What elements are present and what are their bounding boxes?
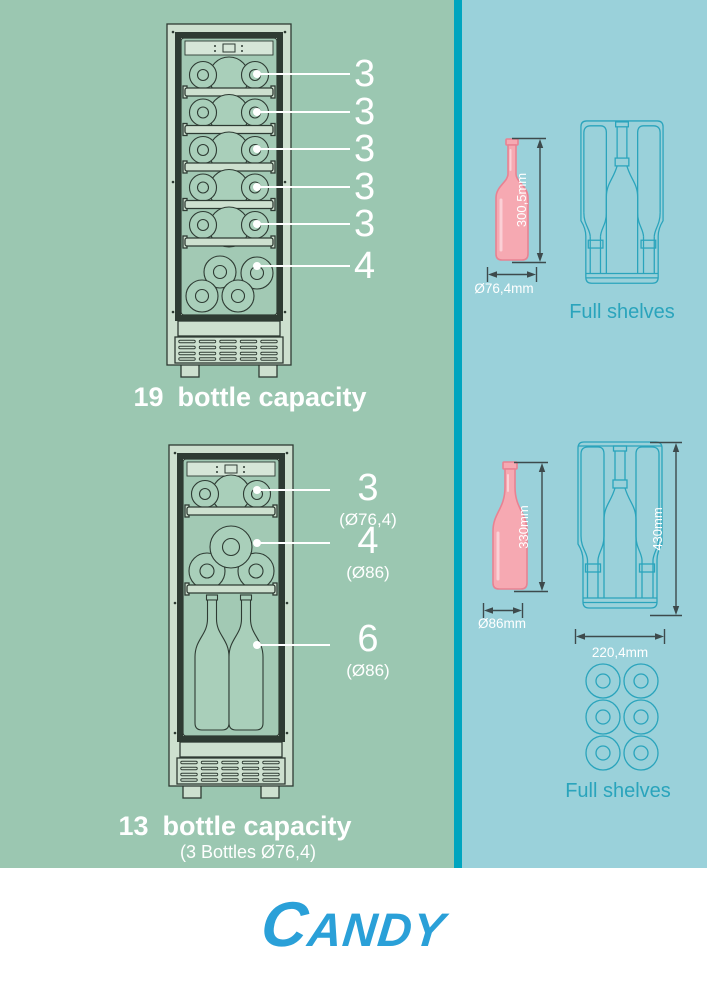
leader-dot <box>253 183 261 191</box>
shelf-row <box>183 207 275 248</box>
leader-line <box>256 644 330 646</box>
leader-dot <box>253 70 261 78</box>
leader-dot <box>253 108 261 116</box>
bottle-diameter-label: Ø86mm <box>450 616 554 631</box>
capacity-number: 13 <box>118 811 148 841</box>
shelf-row <box>183 170 275 211</box>
leader-line <box>256 111 350 113</box>
capacity-number: 19 <box>133 382 163 412</box>
shelf-row <box>183 57 275 98</box>
base-band <box>180 742 282 757</box>
capacity-caption-19: 19bottle capacity <box>95 381 405 413</box>
leader-line <box>256 489 330 491</box>
middle-bottle-outline <box>604 446 636 598</box>
wine-cooler-13-illustration <box>167 443 295 799</box>
middle-bottle-outline <box>606 122 637 274</box>
left-bottle-outline <box>581 447 604 598</box>
shelf-count-label: 3 <box>330 466 406 510</box>
shelf-count-label: 4 <box>330 519 406 563</box>
shelf-count-label-group: 6 (Ø86) <box>330 617 406 681</box>
leader-dot <box>253 486 261 494</box>
shelf-top-view-illustration <box>578 117 666 295</box>
shelf-row <box>183 132 275 173</box>
shelf-row <box>183 95 275 136</box>
leader-dot <box>253 145 261 153</box>
leader-line <box>256 186 350 188</box>
shelf-count-label: 6 <box>330 617 406 661</box>
capacity-text: bottle capacity <box>177 382 366 412</box>
panel-divider <box>454 0 462 868</box>
shelf-count-label: 4 <box>354 242 375 290</box>
bottle-diameter-dimension <box>486 267 538 282</box>
full-shelves-label: Full shelves <box>554 780 682 803</box>
leader-line <box>256 148 350 150</box>
shelf-width-label: 220,4mm <box>568 645 672 660</box>
leader-dot <box>253 641 261 649</box>
wine-cooler-19-illustration <box>165 22 293 378</box>
infographic: 3 3 3 3 3 4 19bottle capacity <box>0 0 707 1000</box>
control-panel <box>185 41 273 55</box>
bottle-ends-top-view <box>580 662 664 772</box>
shelf-diameter-label: (Ø86) <box>330 563 406 583</box>
right-bottle-outline <box>638 126 660 274</box>
left-bottle-outline <box>584 126 606 274</box>
bottle-diameter-label: Ø76,4mm <box>452 281 556 296</box>
leader-line <box>256 265 350 267</box>
leader-dot <box>253 539 261 547</box>
control-panel <box>187 462 275 476</box>
bottle-height-label: 330mm <box>516 505 531 548</box>
shelf-outline <box>581 121 663 283</box>
leader-dot <box>253 262 261 270</box>
leader-line <box>256 223 350 225</box>
bottle-height-dimension: 330mm <box>506 461 548 593</box>
shelf-height-label: 430mm <box>650 507 665 550</box>
leader-line <box>256 542 330 544</box>
base-band <box>178 321 280 336</box>
leader-line <box>256 73 350 75</box>
capacity-text: bottle capacity <box>162 811 351 841</box>
bottle-height-label: 300,5mm <box>514 173 529 227</box>
capacity-subtext: (3 Bottles Ø76,4) <box>86 842 410 862</box>
bottle-height-dimension: 300,5mm <box>504 137 546 264</box>
shelf-width-dimension <box>574 629 666 644</box>
capacity-caption-13: 13bottle capacity (3 Bottles Ø76,4) <box>60 810 410 862</box>
shelf-rows <box>183 57 275 248</box>
shelf-height-dimension: 430mm <box>650 440 682 618</box>
shelf-count-label-group: 4 (Ø86) <box>330 519 406 583</box>
shelf-count-label: 3 <box>354 200 375 248</box>
candy-brand-logo: CANDY <box>0 893 707 962</box>
full-shelves-label: Full shelves <box>558 301 686 324</box>
leader-dot <box>253 220 261 228</box>
shelf-diameter-label: (Ø86) <box>330 661 406 681</box>
